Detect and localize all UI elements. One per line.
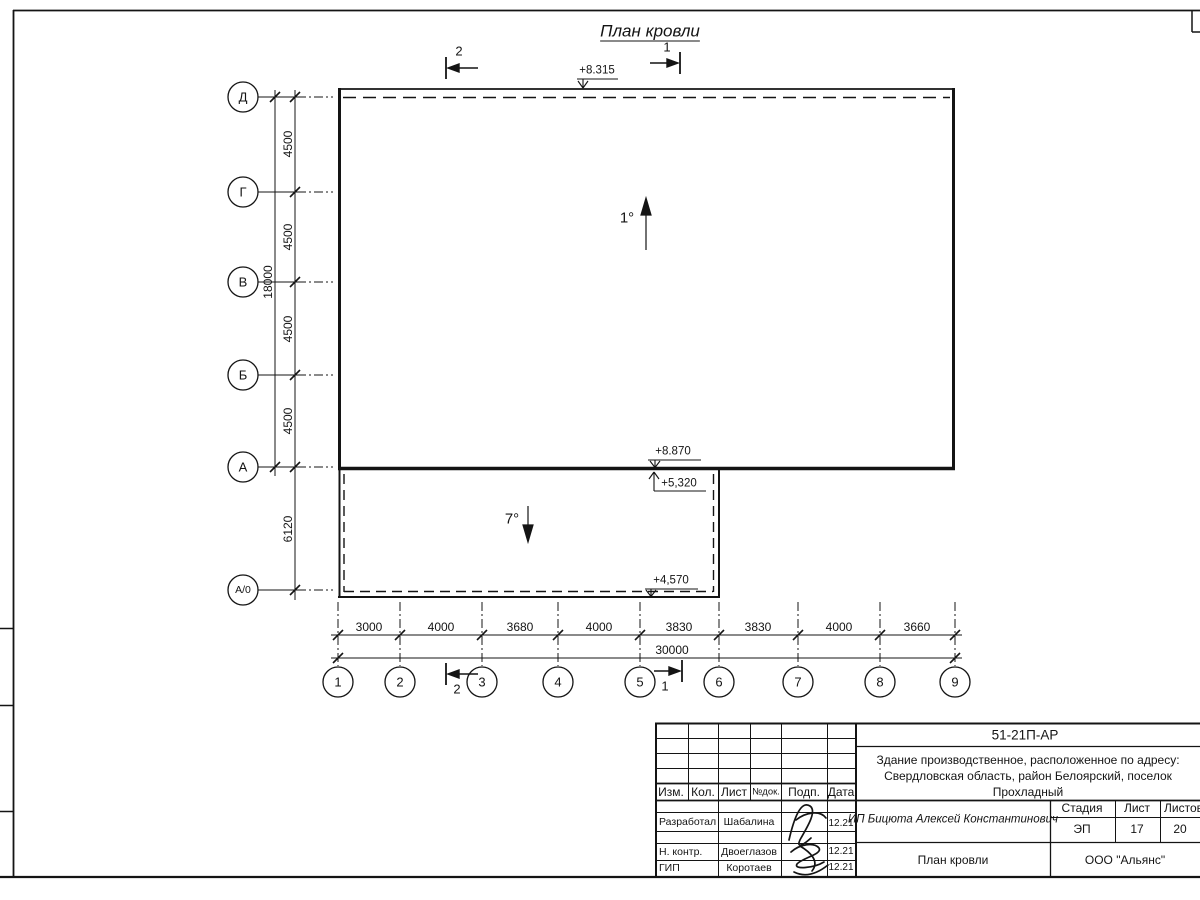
col-axis-bubble: 1	[334, 676, 341, 689]
titleblock-doc-number: 51-21П-АР	[992, 728, 1059, 742]
slope-arrows	[523, 198, 651, 542]
titleblock-object-line2: Свердловская область, район Белоярский, …	[884, 770, 1172, 782]
col-dimension: 4000	[428, 621, 455, 633]
col-axis-extensions	[338, 602, 955, 666]
row-dimension: 4500	[282, 131, 294, 158]
section-number-2-bottom: 2	[453, 683, 460, 696]
drawing-sheet: { "drawing": { "title": "План кровли", "…	[0, 0, 1200, 900]
row-axis-bubble: В	[239, 276, 248, 289]
col-dimension: 3000	[356, 621, 383, 633]
row-axis-bubble: А	[239, 461, 248, 474]
titleblock-stage-value: ЭП	[1073, 823, 1090, 835]
row-dimension: 4500	[282, 408, 294, 435]
titleblock-role: ГИП	[659, 863, 680, 874]
col-axis-bubble: 6	[715, 676, 722, 689]
titleblock-sheet-label: Лист	[1124, 802, 1150, 814]
titleblock-header-kol: Кол.	[691, 786, 715, 798]
drawing-title: План кровли	[600, 23, 700, 40]
col-dimension-lines	[331, 635, 962, 658]
titleblock-date: 12.21	[828, 847, 853, 857]
titleblock-role: Н. контр.	[659, 847, 702, 858]
elevation-roof-top: +8.315	[579, 65, 615, 77]
col-axis-bubble: 8	[876, 676, 883, 689]
col-axis-bubble: 3	[478, 676, 485, 689]
titleblock-object-line3: Прохладный	[993, 786, 1063, 798]
titleblock-name: Двоеглазов	[721, 847, 777, 858]
titleblock-header-data: Дата	[828, 786, 855, 798]
titleblock-date: 12.21	[828, 863, 853, 873]
col-dimension: 3660	[904, 621, 931, 633]
elevation-wall-a-bottom: +5,320	[661, 478, 697, 490]
row-axis-bubble: Д	[239, 91, 248, 104]
row-axis-bubble: А/0	[235, 585, 251, 596]
titleblock-header-podp: Подп.	[788, 786, 820, 798]
elevation-annex-edge: +4,570	[653, 575, 689, 587]
section-mark-2-top	[446, 57, 478, 79]
titleblock-header-list: Лист	[721, 786, 747, 798]
titleblock-sheet-value: 17	[1130, 823, 1143, 835]
slope-arrow-annex	[523, 506, 533, 542]
titleblock-header-izm: Изм.	[658, 786, 684, 798]
row-dimension: 4500	[282, 224, 294, 251]
titleblock-sheets-value: 20	[1173, 823, 1186, 835]
titleblock-customer: ИП Бицюта Алексей Константинович	[848, 814, 1058, 826]
row-total-dimension: 18000	[262, 265, 274, 298]
row-axis-bubble: Б	[239, 369, 248, 382]
col-axis-bubble: 2	[396, 676, 403, 689]
col-dimension: 4000	[586, 621, 613, 633]
section-number-1-bottom: 1	[661, 680, 668, 693]
row-dimension: 6120	[282, 516, 294, 543]
slope-label-main: 1°	[620, 211, 634, 226]
titleblock-sheets-label: Листов	[1164, 802, 1200, 814]
signatures	[789, 805, 828, 875]
main-roof-outline	[338, 88, 955, 470]
col-axis-bubble: 7	[794, 676, 801, 689]
titleblock-object-line1: Здание производственное, расположенное п…	[876, 754, 1179, 766]
col-total-dimension: 30000	[655, 644, 688, 656]
slope-label-annex: 7°	[505, 512, 519, 527]
elevation-leaders	[577, 79, 706, 597]
slope-arrow-main	[641, 198, 651, 250]
col-dimension: 3680	[507, 621, 534, 633]
elevation-wall-a-top: +8.870	[655, 446, 691, 458]
titleblock-name: Коротаев	[726, 863, 771, 874]
col-dimension: 3830	[666, 621, 693, 633]
elevation-leader-annex-edge	[645, 589, 698, 597]
titleblock-header-ndoc: №док.	[752, 787, 780, 797]
col-axis-bubble: 9	[951, 676, 958, 689]
col-axis-bubble: 5	[636, 676, 643, 689]
dimension-ticks	[270, 92, 960, 663]
col-dimension: 4000	[826, 621, 853, 633]
row-axis-bubble: Г	[239, 186, 246, 199]
titleblock-stage-label: Стадия	[1062, 802, 1103, 814]
titleblock-sheet-title: План кровли	[918, 854, 989, 866]
signature-developer	[789, 805, 826, 845]
elevation-leader-roof-top	[577, 79, 618, 88]
elevation-leader-wall-a-top	[648, 460, 701, 468]
titleblock-company: ООО "Альянс"	[1085, 854, 1165, 866]
section-number-1-top: 1	[663, 41, 670, 54]
col-axis-bubble: 4	[554, 676, 561, 689]
col-dimension: 3830	[745, 621, 772, 633]
row-dimension: 4500	[282, 316, 294, 343]
section-mark-1-top	[650, 52, 680, 74]
section-number-2-top: 2	[455, 45, 462, 58]
titleblock-role: Разработал	[659, 817, 716, 828]
signature-control	[791, 845, 828, 875]
titleblock-name: Шабалина	[724, 817, 775, 828]
